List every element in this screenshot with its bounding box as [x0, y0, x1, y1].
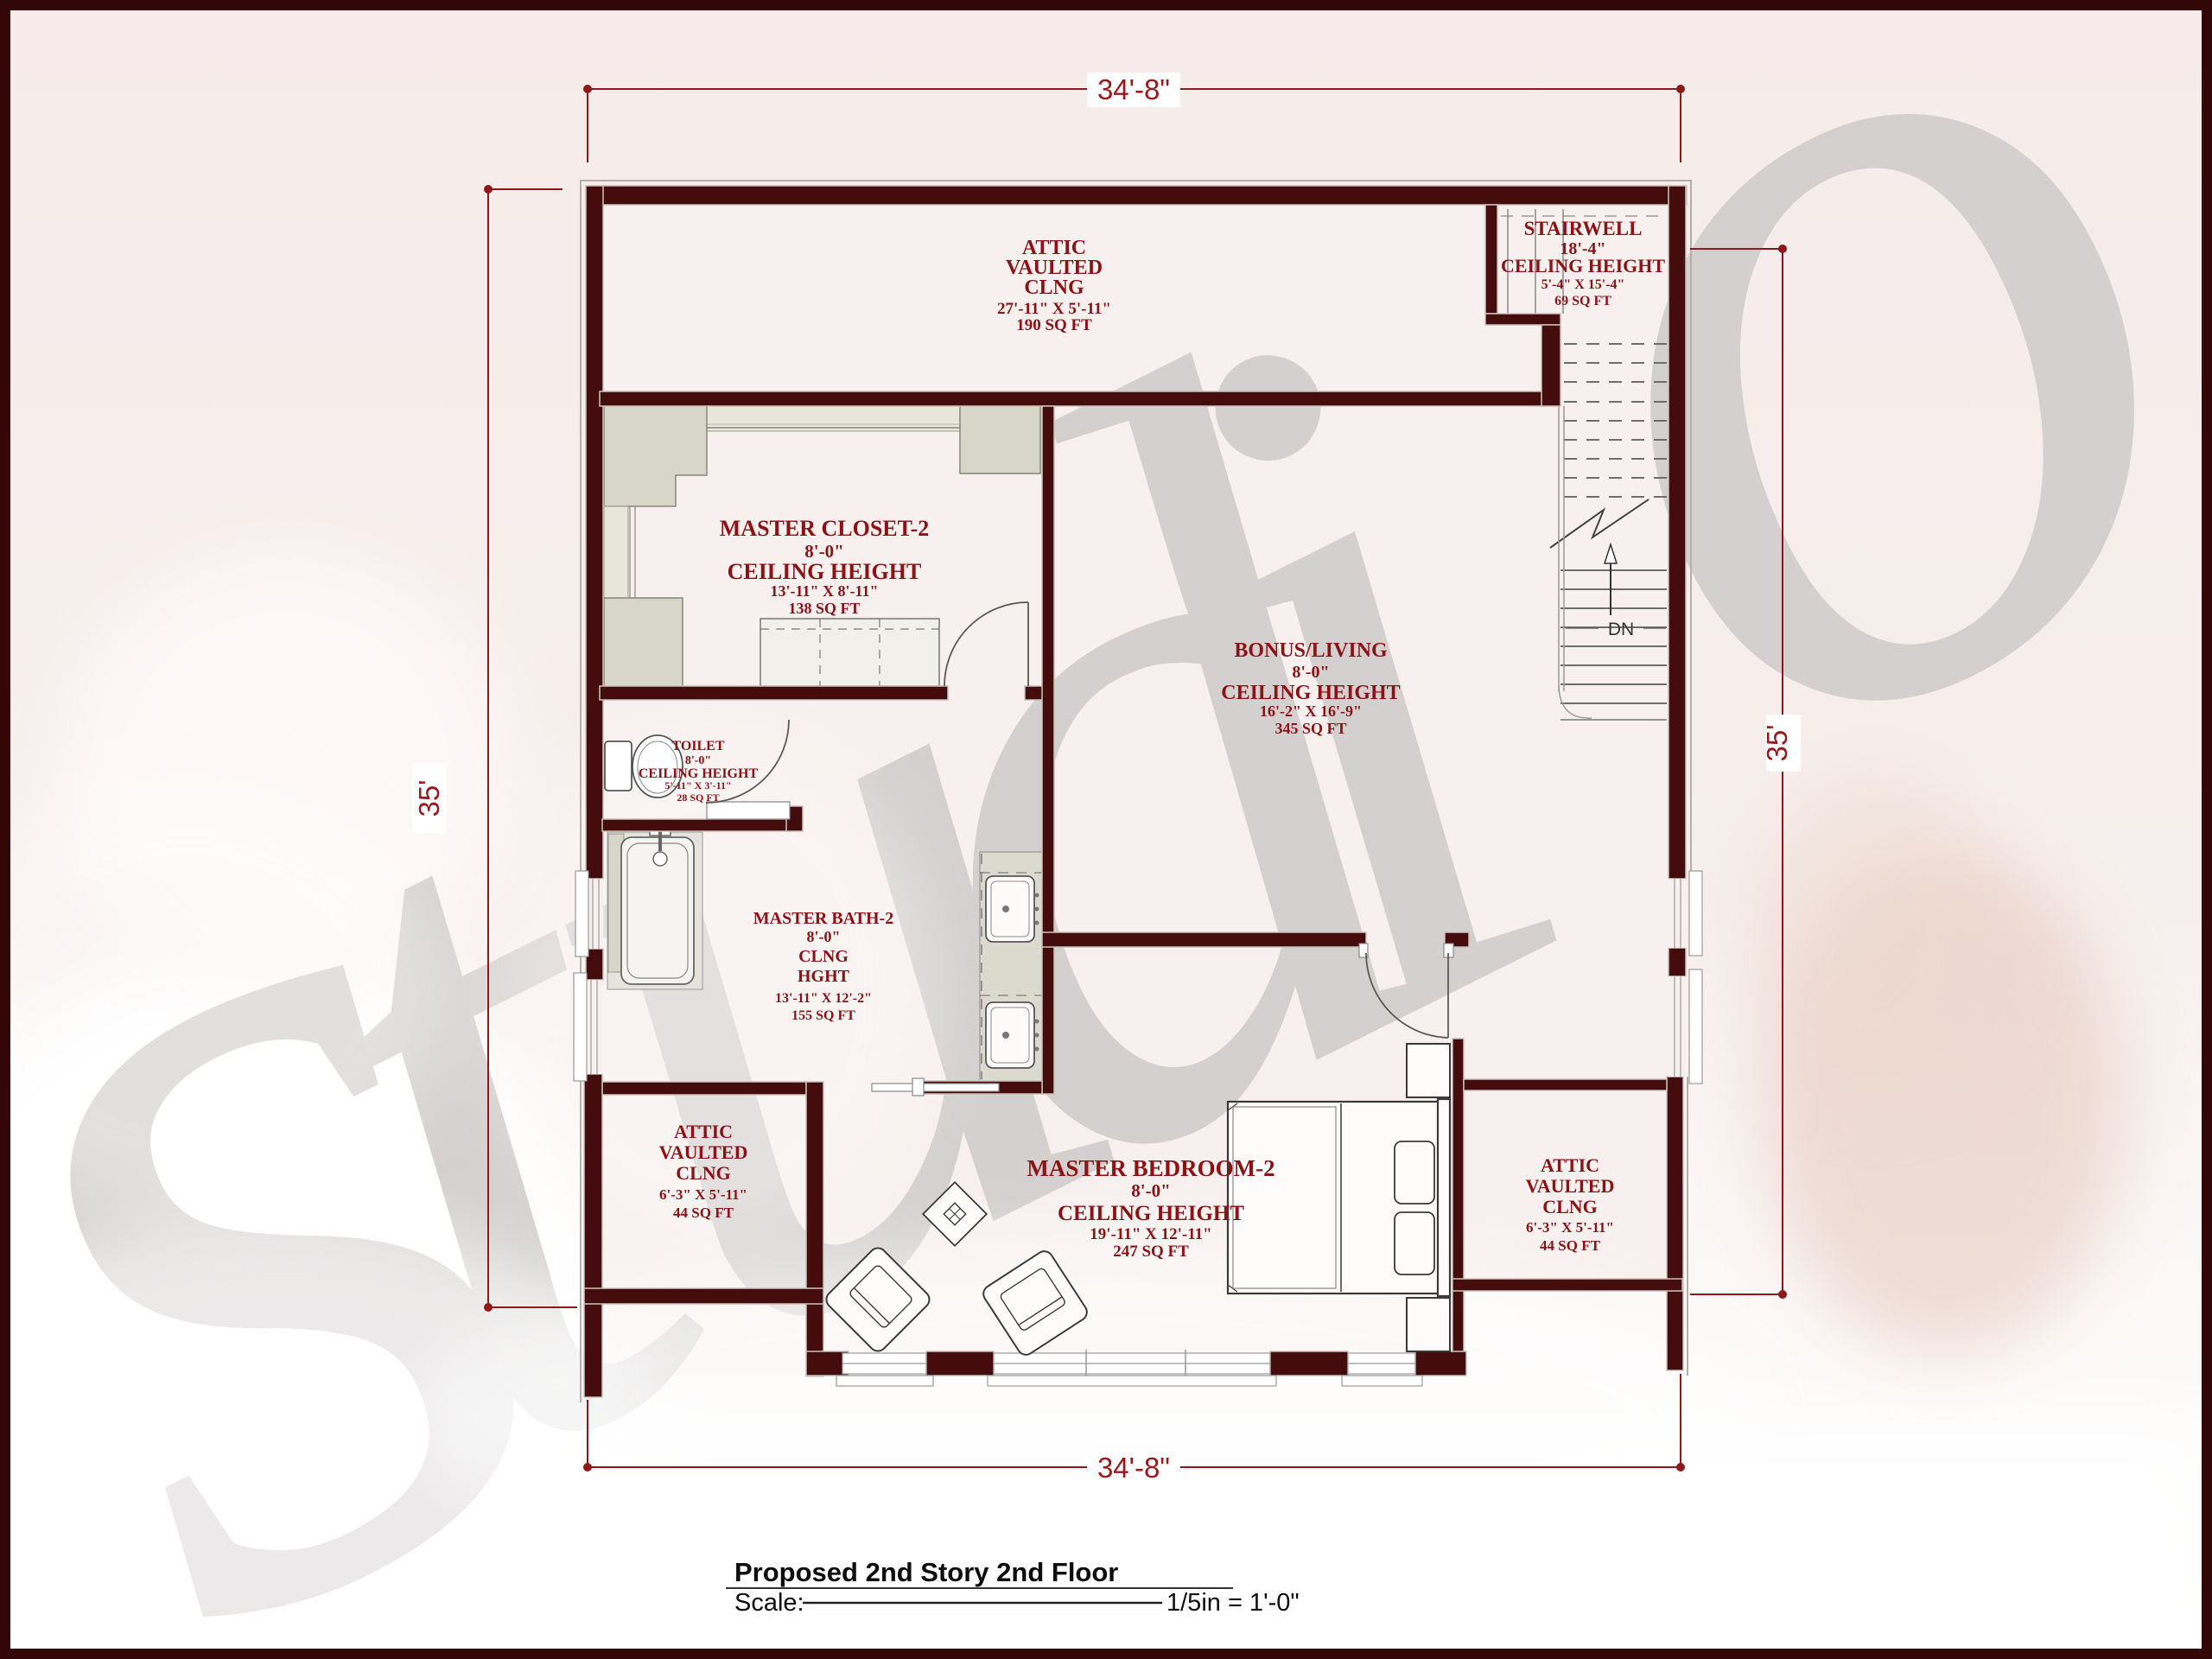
svg-text:247 SQ FT: 247 SQ FT	[1113, 1243, 1189, 1261]
svg-text:34'-8": 34'-8"	[1097, 1452, 1170, 1484]
svg-text:ATTIC: ATTIC	[1541, 1154, 1599, 1176]
svg-text:ATTIC: ATTIC	[674, 1121, 733, 1142]
svg-text:27'-11" X 5'-11": 27'-11" X 5'-11"	[997, 300, 1111, 318]
svg-text:35': 35'	[1761, 724, 1793, 761]
svg-text:8'-0": 8'-0"	[807, 928, 841, 945]
svg-text:VAULTED: VAULTED	[1526, 1175, 1615, 1197]
svg-text:MASTER CLOSET-2: MASTER CLOSET-2	[720, 516, 930, 541]
svg-text:44 SQ FT: 44 SQ FT	[1540, 1237, 1601, 1254]
svg-text:1/5in = 1'-0": 1/5in = 1'-0"	[1166, 1589, 1300, 1617]
svg-text:28 SQ FT: 28 SQ FT	[677, 791, 719, 804]
svg-text:DN: DN	[1608, 620, 1634, 639]
svg-text:8'-0": 8'-0"	[685, 754, 711, 767]
svg-text:MASTER BEDROOM-2: MASTER BEDROOM-2	[1027, 1155, 1274, 1181]
svg-text:Scale:: Scale:	[734, 1589, 804, 1617]
svg-text:STAIRWELL: STAIRWELL	[1524, 218, 1643, 239]
svg-text:19'-11" X 12'-11": 19'-11" X 12'-11"	[1090, 1225, 1211, 1243]
svg-text:44 SQ FT: 44 SQ FT	[673, 1205, 734, 1221]
svg-text:CEILING HEIGHT: CEILING HEIGHT	[1221, 682, 1400, 704]
svg-text:190 SQ FT: 190 SQ FT	[1016, 316, 1092, 334]
svg-text:16'-2" X 16'-9": 16'-2" X 16'-9"	[1260, 702, 1362, 720]
svg-text:138 SQ FT: 138 SQ FT	[788, 600, 860, 617]
svg-text:MASTER BATH-2: MASTER BATH-2	[753, 909, 893, 928]
svg-text:CEILING HEIGHT: CEILING HEIGHT	[1501, 255, 1665, 276]
svg-text:Proposed 2nd Story 2nd Floor: Proposed 2nd Story 2nd Floor	[734, 1557, 1118, 1587]
svg-text:6'-3" X 5'-11": 6'-3" X 5'-11"	[1526, 1219, 1614, 1236]
svg-text:6'-3" X 5'-11": 6'-3" X 5'-11"	[659, 1186, 747, 1203]
svg-text:34'-8": 34'-8"	[1097, 73, 1170, 105]
svg-text:TOILET: TOILET	[671, 739, 724, 753]
svg-text:13'-11" X 12'-2": 13'-11" X 12'-2"	[775, 991, 872, 1006]
svg-text:5'-11" X 3'-11": 5'-11" X 3'-11"	[664, 779, 731, 791]
svg-text:VAULTED: VAULTED	[659, 1141, 748, 1163]
svg-text:BONUS/LIVING: BONUS/LIVING	[1234, 639, 1388, 662]
svg-text:5'-4" X 15'-4": 5'-4" X 15'-4"	[1541, 277, 1625, 292]
svg-text:CEILING HEIGHT: CEILING HEIGHT	[728, 559, 922, 584]
svg-text:8'-0": 8'-0"	[1131, 1180, 1171, 1201]
svg-text:155 SQ FT: 155 SQ FT	[791, 1008, 855, 1023]
svg-text:69 SQ FT: 69 SQ FT	[1554, 294, 1611, 308]
svg-text:13'-11" X 8'-11": 13'-11" X 8'-11"	[771, 582, 879, 600]
svg-text:CLNG: CLNG	[1024, 276, 1084, 299]
svg-text:CLNG: CLNG	[798, 947, 849, 966]
svg-text:CEILING HEIGHT: CEILING HEIGHT	[1058, 1202, 1244, 1225]
svg-text:345 SQ FT: 345 SQ FT	[1274, 720, 1346, 737]
svg-text:8'-0": 8'-0"	[1292, 663, 1329, 682]
svg-text:CLNG: CLNG	[676, 1162, 731, 1184]
svg-text:35': 35'	[413, 779, 445, 817]
svg-text:CLNG: CLNG	[1542, 1196, 1598, 1217]
svg-text:HGHT: HGHT	[798, 967, 850, 986]
